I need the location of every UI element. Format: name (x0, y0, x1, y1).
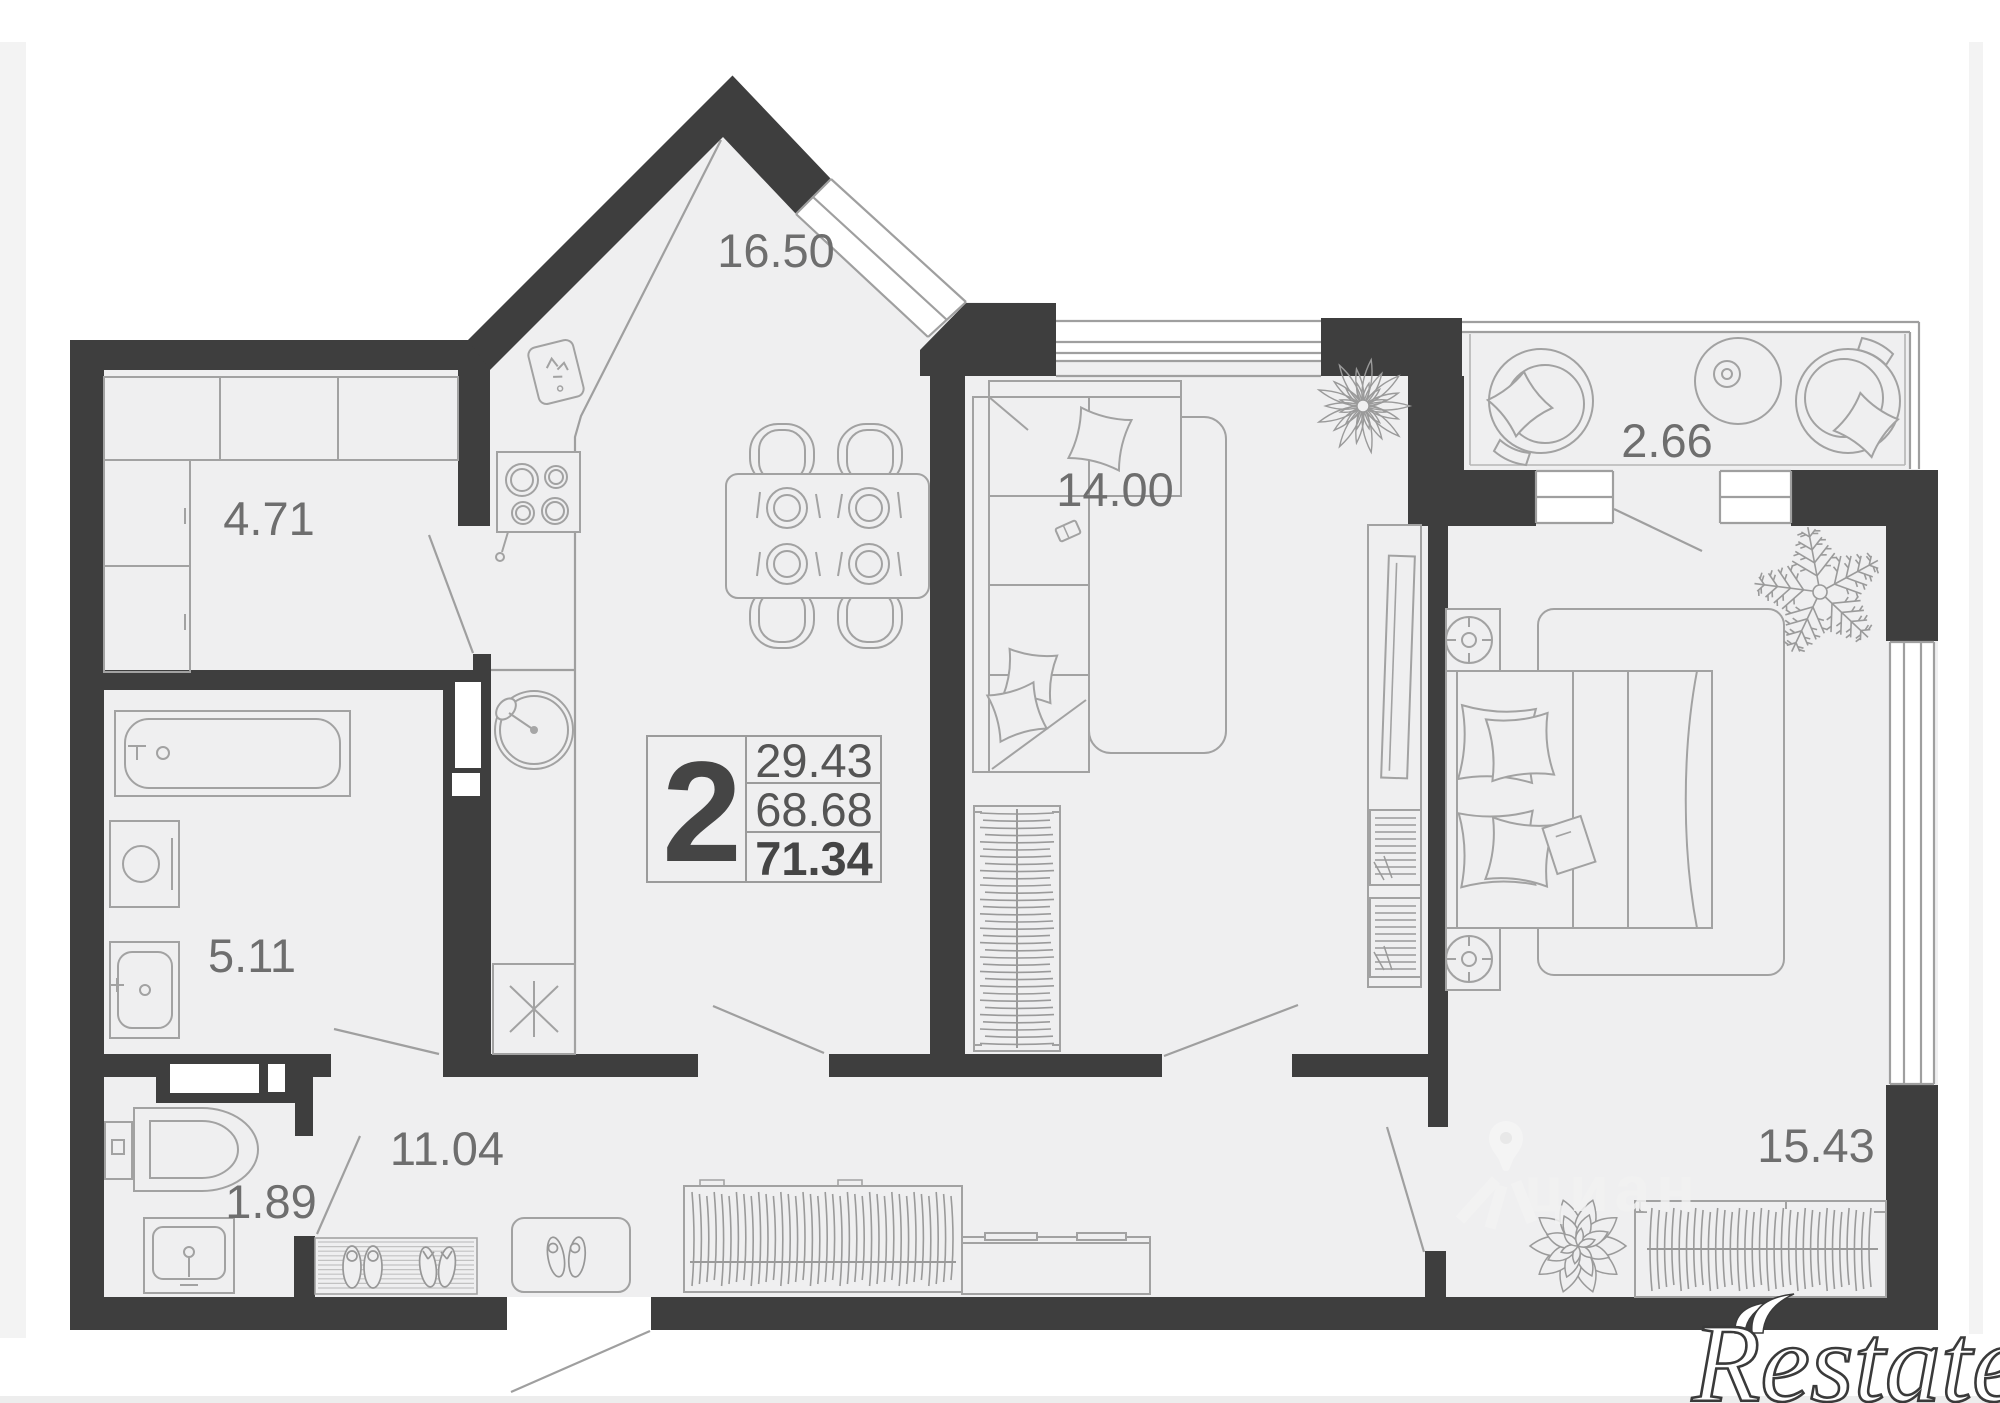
svg-text:15.43: 15.43 (1757, 1119, 1875, 1172)
svg-text:5.11: 5.11 (208, 929, 296, 982)
svg-text:14.00: 14.00 (1056, 463, 1174, 516)
svg-text:2: 2 (662, 733, 742, 892)
svg-text:11.04: 11.04 (390, 1122, 504, 1175)
svg-text:71.34: 71.34 (755, 832, 873, 885)
svg-text:2.66: 2.66 (1621, 414, 1712, 467)
svg-text:16.50: 16.50 (717, 224, 835, 277)
svg-text:29.43: 29.43 (755, 734, 873, 787)
svg-text:Restate: Restate (1691, 1302, 2000, 1403)
svg-text:циан: циан (1524, 1153, 1701, 1225)
svg-text:68.68: 68.68 (755, 783, 873, 836)
svg-text:4.71: 4.71 (223, 492, 314, 545)
svg-text:1.89: 1.89 (225, 1175, 316, 1228)
